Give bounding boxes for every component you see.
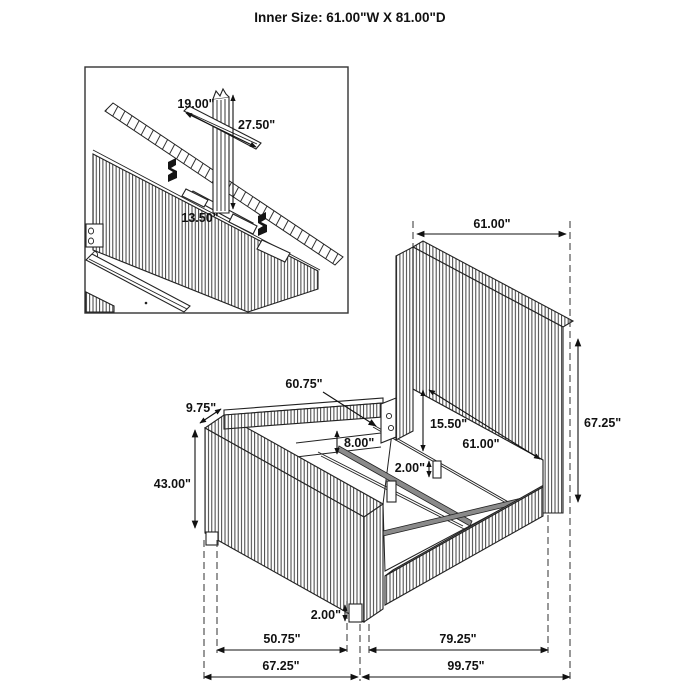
dim-footboard-height-label: 43.00" bbox=[154, 477, 191, 491]
diagram-canvas: Inner Size: 61.00"W X 81.00"D bbox=[0, 0, 700, 700]
slat-leg bbox=[387, 481, 396, 502]
dim-top-width-label: 61.00" bbox=[473, 217, 510, 231]
footboard-end-face bbox=[364, 504, 383, 622]
headboard-left-stile bbox=[396, 247, 413, 440]
footboard-leg bbox=[206, 532, 218, 545]
dim-rail-height-label: 8.00" bbox=[344, 436, 374, 450]
bed-dimension-diagram: Inner Size: 61.00"W X 81.00"D bbox=[0, 0, 700, 700]
dim-slat-leg-label: 2.00" bbox=[395, 461, 425, 475]
inset-strip-length-label: 19.00" bbox=[177, 97, 214, 111]
rail-mount-plate bbox=[381, 398, 396, 443]
dim-headboard-height-label: 67.25" bbox=[584, 416, 621, 430]
dim-platform-clearance-label: 15.50" bbox=[430, 417, 467, 431]
dim-bottom-row2-left-label: 67.25" bbox=[262, 659, 299, 673]
dim-bottom-row1-right-label: 79.25" bbox=[439, 632, 476, 646]
dim-bottom-row1-left-label: 50.75" bbox=[263, 632, 300, 646]
dim-bottom-row2-right-label: 99.75" bbox=[447, 659, 484, 673]
inset-detail-box: 19.00" 27.50" 13.50" bbox=[85, 67, 348, 313]
inset-post-height-label: 27.50" bbox=[238, 118, 275, 132]
dim-foot-leg-label: 2.00" bbox=[311, 608, 341, 622]
page-title: Inner Size: 61.00"W X 81.00"D bbox=[254, 10, 446, 25]
dim-slat-length-label: 60.75" bbox=[285, 377, 322, 391]
inset-left-bracket bbox=[86, 224, 103, 247]
inset-bracket-rail-label: 13.50" bbox=[181, 211, 218, 225]
footboard-leg bbox=[349, 604, 362, 622]
dim-footboard-depth-label: 9.75" bbox=[186, 401, 216, 415]
dim-inner-width-label: 61.00" bbox=[462, 437, 499, 451]
slat-leg bbox=[433, 461, 441, 478]
